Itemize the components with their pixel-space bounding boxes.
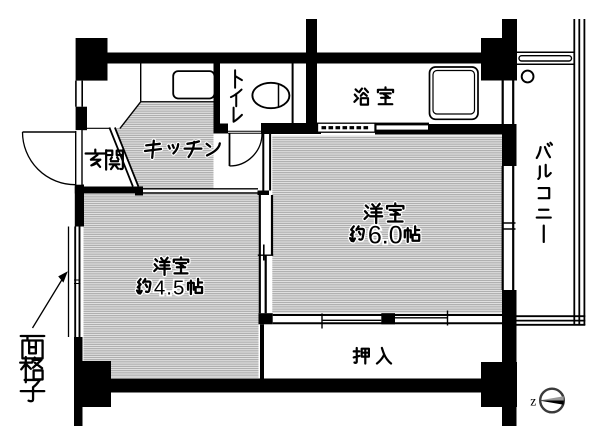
svg-text:6.0: 6.0	[368, 222, 403, 250]
svg-text:z: z	[530, 394, 536, 409]
svg-text:4.5: 4.5	[154, 277, 186, 300]
